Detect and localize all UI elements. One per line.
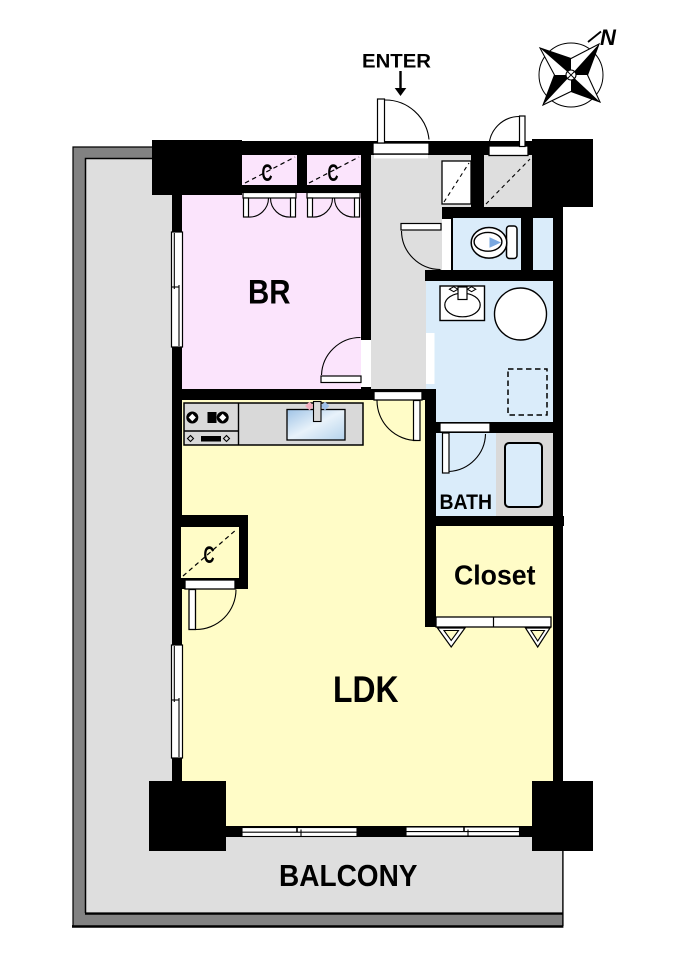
- svg-text:N: N: [600, 25, 617, 50]
- svg-text:C: C: [204, 542, 215, 569]
- svg-text:LDK: LDK: [333, 669, 399, 710]
- svg-text:BATH: BATH: [440, 491, 493, 514]
- svg-text:BALCONY: BALCONY: [279, 858, 418, 893]
- svg-text:BR: BR: [248, 274, 291, 312]
- svg-text:C: C: [328, 160, 339, 187]
- svg-text:ENTER: ENTER: [362, 51, 431, 73]
- svg-text:Closet: Closet: [454, 560, 536, 591]
- svg-text:C: C: [262, 160, 273, 187]
